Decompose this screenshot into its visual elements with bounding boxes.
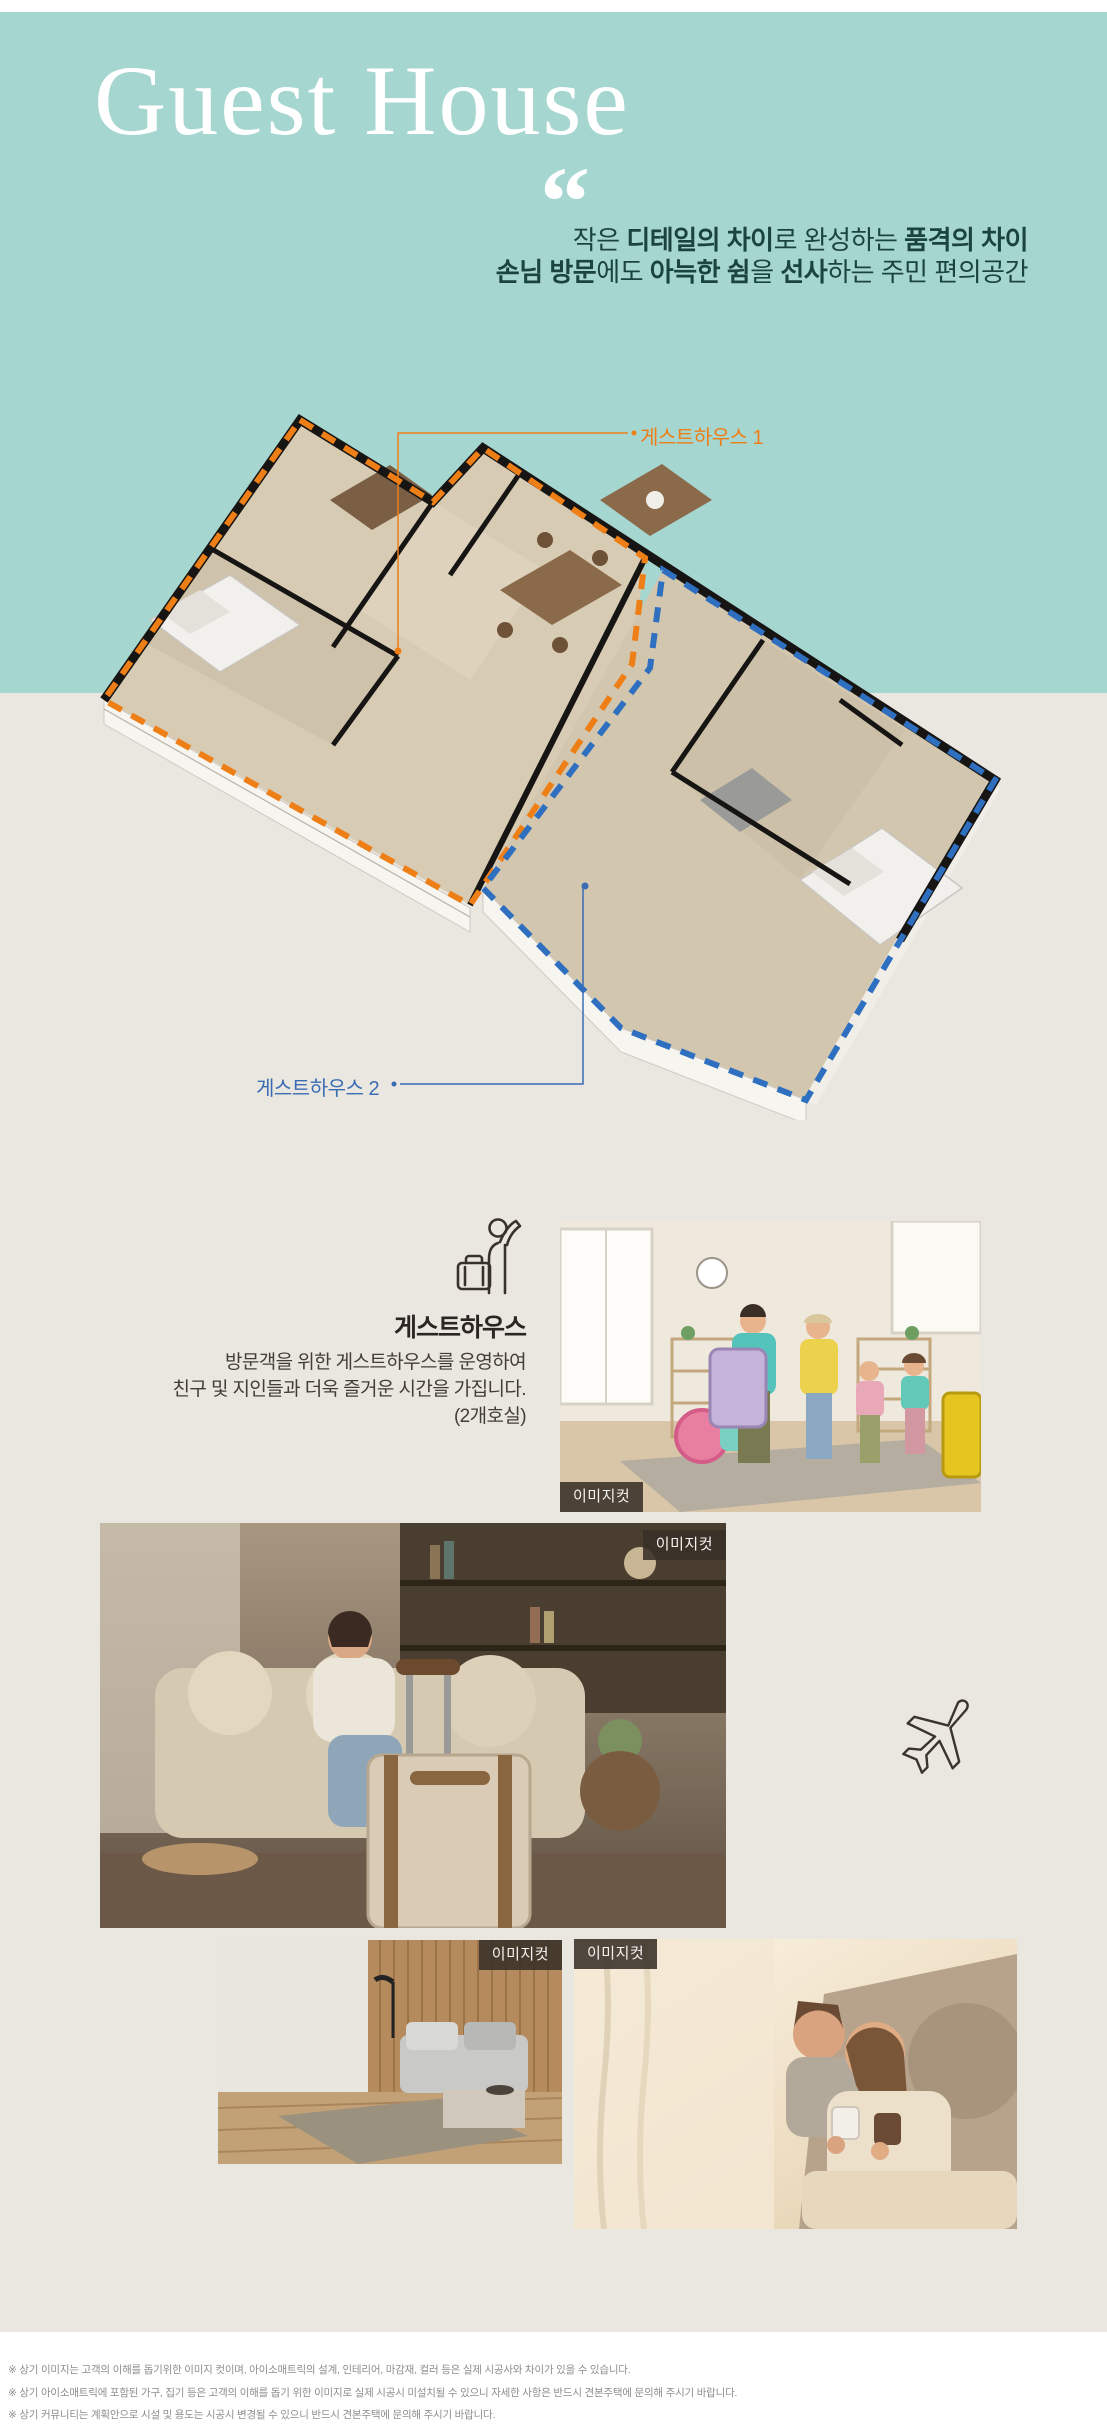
disclaimer-line-1: ※ 상기 이미지는 고객의 이해를 돕기위한 이미지 컷이며, 아이소매트릭의 … bbox=[8, 2359, 1098, 2382]
floorplan-label-guesthouse1: 게스트하우스 1 bbox=[640, 421, 763, 450]
badge-label: 이미지컷 bbox=[656, 1536, 713, 1553]
tagline-text-bold: 선사 bbox=[780, 257, 827, 287]
feature-line-2: 친구 및 지인들과 더욱 즐거운 시간을 가집니다. bbox=[173, 1376, 526, 1403]
badge-label: 이미지컷 bbox=[587, 1945, 644, 1962]
tagline-text: 을 bbox=[750, 257, 780, 287]
image-cut-badge: 이미지컷 bbox=[560, 1482, 643, 1512]
image-cut-badge: 이미지컷 bbox=[643, 1530, 726, 1560]
feature-line-3: (2개호실) bbox=[173, 1403, 526, 1430]
tagline-text-bold: 손님 방문 bbox=[496, 257, 596, 287]
footer-disclaimer: ※ 상기 이미지는 고객의 이해를 돕기위한 이미지 컷이며, 아이소매트릭의 … bbox=[8, 2359, 1098, 2427]
badge-label: 이미지컷 bbox=[492, 1946, 549, 1963]
photo-relaxing-imagecut bbox=[574, 1939, 1017, 2229]
hero-tagline-2: 손님 방문에도 아늑한 쉼을 선사하는 주민 편의공간 bbox=[496, 252, 1028, 289]
feature-heading: 게스트하우스 bbox=[394, 1308, 526, 1344]
tagline-text-bold: 디테일의 차이 bbox=[626, 225, 773, 255]
feature-description: 방문객을 위한 게스트하우스를 운영하여 친구 및 지인들과 더욱 즐거운 시간… bbox=[173, 1349, 526, 1430]
image-cut-badge: 이미지컷 bbox=[479, 1940, 562, 1970]
feature-line-1: 방문객을 위한 게스트하우스를 운영하여 bbox=[173, 1349, 526, 1376]
tagline-text-bold: 아늑한 쉼 bbox=[650, 257, 750, 287]
airplane-icon bbox=[890, 1696, 978, 1788]
photo-family-imagecut bbox=[560, 1221, 981, 1512]
quote-mark: “ bbox=[540, 152, 620, 212]
tagline-text: 작은 bbox=[573, 225, 627, 255]
image-cut-badge: 이미지컷 bbox=[574, 1939, 657, 1969]
tagline-text: 하는 주민 편의공간 bbox=[827, 257, 1028, 287]
tagline-text: 로 완성하는 bbox=[774, 225, 905, 255]
badge-label: 이미지컷 bbox=[573, 1488, 630, 1505]
tagline-text: 에도 bbox=[596, 257, 650, 287]
disclaimer-line-3: ※ 상기 커뮤니티는 계획안으로 시설 및 용도는 시공시 변경될 수 있으니 … bbox=[8, 2404, 1098, 2427]
page-title: Guest House bbox=[94, 46, 794, 156]
isometric-floorplan-illustration bbox=[0, 400, 1107, 1120]
floorplan-label-guesthouse2: 게스트하우스 2 bbox=[256, 1072, 379, 1101]
tagline-text-bold: 품격의 차이 bbox=[904, 225, 1028, 255]
photo-interior-imagecut bbox=[218, 1940, 562, 2164]
photo-lounge-imagecut bbox=[100, 1523, 726, 1928]
guesthouse-promo-page: { "colors": { "teal_bg": "#a6d6d0", "bei… bbox=[0, 0, 1107, 2424]
waving-person-with-suitcase-icon bbox=[452, 1215, 530, 1297]
disclaimer-line-2: ※ 상기 아이소매트릭에 포함된 가구, 집기 등은 고객의 이해를 돕기 위한… bbox=[8, 2382, 1098, 2405]
